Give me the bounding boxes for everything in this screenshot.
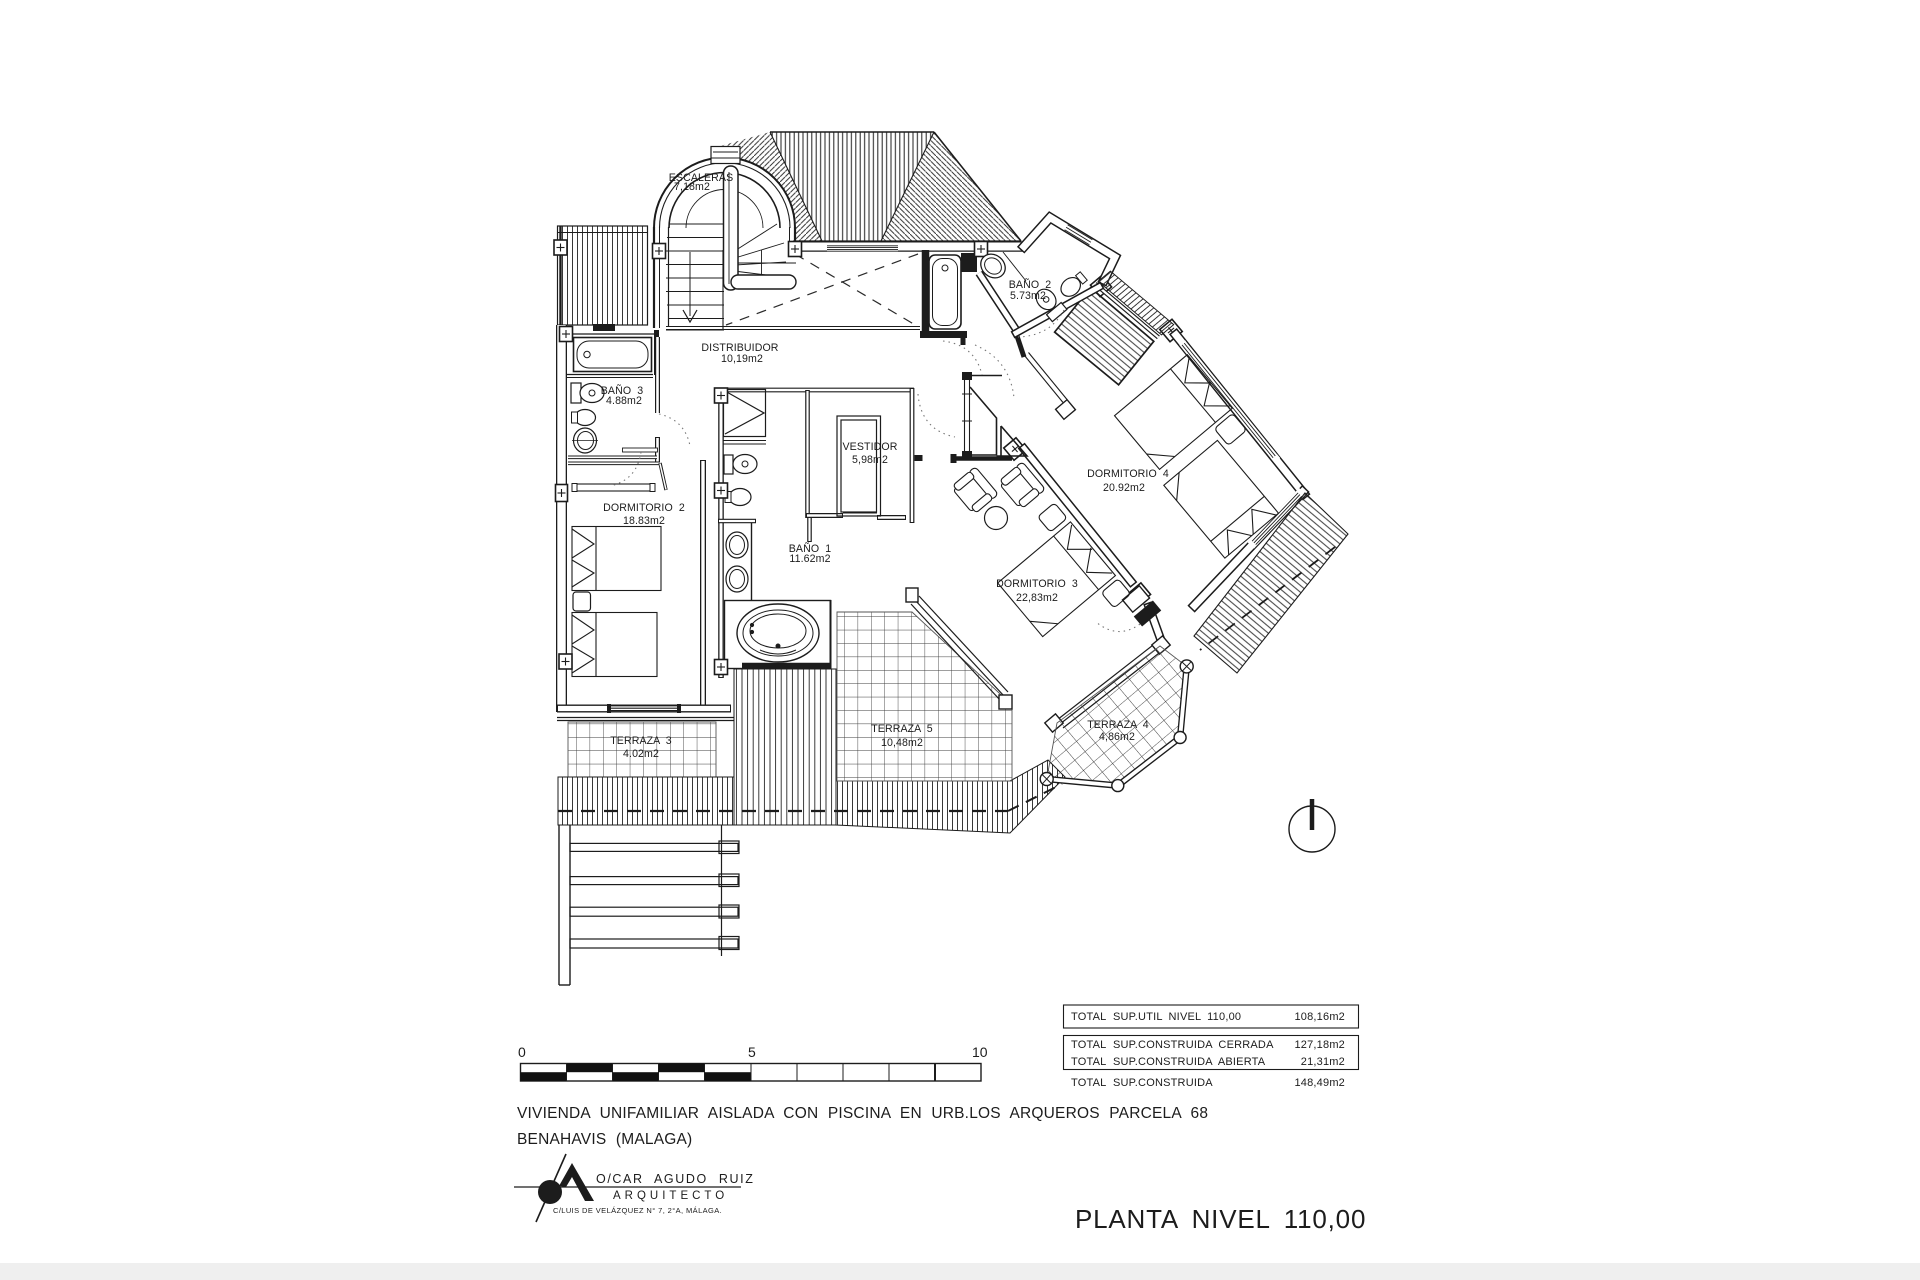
svg-text:22,83m2: 22,83m2 [1016, 592, 1058, 604]
svg-text:SUP.UTIL NIVEL 110,00: SUP.UTIL NIVEL 110,00 [1113, 1011, 1241, 1023]
svg-text:0: 0 [518, 1044, 526, 1060]
svg-text:4.88m2: 4.88m2 [606, 395, 642, 407]
svg-text:VESTIDOR: VESTIDOR [843, 441, 898, 453]
svg-text:TOTAL: TOTAL [1071, 1077, 1106, 1089]
svg-text:10,19m2: 10,19m2 [721, 353, 763, 365]
svg-text:TERRAZA 4: TERRAZA 4 [1087, 719, 1149, 731]
svg-text:127,18m2: 127,18m2 [1294, 1039, 1345, 1051]
svg-text:21,31m2: 21,31m2 [1301, 1056, 1345, 1068]
svg-text:C/LUIS DE VELÁZQUEZ N° 7, 2°A,: C/LUIS DE VELÁZQUEZ N° 7, 2°A, MÁLAGA. [553, 1206, 722, 1215]
svg-text:5.73m2: 5.73m2 [1010, 290, 1046, 302]
svg-text:4,86m2: 4,86m2 [1099, 731, 1135, 743]
svg-text:148,49m2: 148,49m2 [1294, 1077, 1345, 1089]
svg-text:20.92m2: 20.92m2 [1103, 482, 1145, 494]
svg-text:DORMITORIO 4: DORMITORIO 4 [1087, 468, 1169, 480]
svg-text:11.62m2: 11.62m2 [789, 553, 830, 565]
svg-text:5: 5 [748, 1044, 756, 1060]
svg-text:TOTAL: TOTAL [1071, 1056, 1106, 1068]
svg-text:O/CAR AGUDO RUIZ: O/CAR AGUDO RUIZ [596, 1172, 754, 1186]
svg-text:TERRAZA 3: TERRAZA 3 [610, 735, 672, 747]
svg-text:10: 10 [972, 1044, 988, 1060]
svg-text:10,48m2: 10,48m2 [881, 737, 923, 749]
svg-text:TOTAL: TOTAL [1071, 1039, 1106, 1051]
svg-text:TOTAL: TOTAL [1071, 1011, 1106, 1023]
svg-text:18.83m2: 18.83m2 [623, 515, 665, 527]
svg-text:TERRAZA 5: TERRAZA 5 [871, 723, 933, 735]
svg-text:ARQUITECTO: ARQUITECTO [613, 1190, 728, 1202]
svg-text:DORMITORIO 3: DORMITORIO 3 [996, 578, 1078, 590]
svg-text:4.02m2: 4.02m2 [623, 748, 659, 760]
svg-text:SUP.CONSTRUIDA ABIERTA: SUP.CONSTRUIDA ABIERTA [1113, 1056, 1266, 1068]
svg-text:VIVIENDA UNIFAMILIAR AISLADA C: VIVIENDA UNIFAMILIAR AISLADA CON PISCINA… [517, 1105, 1208, 1122]
svg-text:PLANTA NIVEL 110,00: PLANTA NIVEL 110,00 [1075, 1204, 1366, 1234]
svg-text:BENAHAVIS (MALAGA): BENAHAVIS (MALAGA) [517, 1131, 692, 1148]
svg-text:SUP.CONSTRUIDA: SUP.CONSTRUIDA [1113, 1077, 1213, 1089]
svg-text:7,18m2: 7,18m2 [674, 181, 710, 193]
svg-text:DORMITORIO 2: DORMITORIO 2 [603, 502, 685, 514]
svg-text:108,16m2: 108,16m2 [1294, 1011, 1345, 1023]
svg-text:5,98m2: 5,98m2 [852, 454, 888, 466]
svg-text:SUP.CONSTRUIDA CERRADA: SUP.CONSTRUIDA CERRADA [1113, 1039, 1274, 1051]
